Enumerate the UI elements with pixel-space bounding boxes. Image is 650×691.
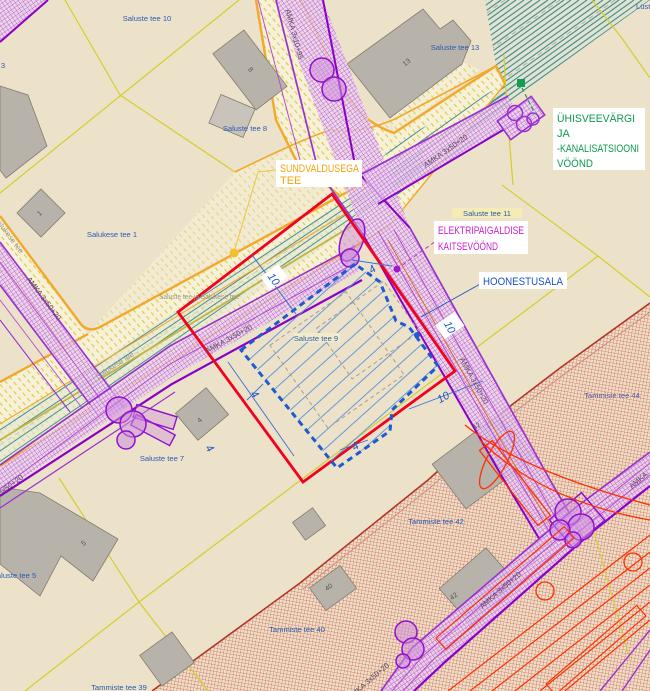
svg-text:JA: JA (557, 128, 571, 140)
svg-text:Salukese tee 1: Salukese tee 1 (87, 230, 137, 239)
svg-text:Saluste tee 8: Saluste tee 8 (223, 124, 267, 133)
svg-text:3: 3 (1, 61, 5, 70)
svg-text:Saluste tee 10: Saluste tee 10 (123, 14, 172, 23)
svg-text:ÜHISVEEVÄRGI: ÜHISVEEVÄRGI (557, 113, 635, 125)
svg-text:HOONESTUSALA: HOONESTUSALA (483, 276, 564, 288)
svg-text:-KANALISATSIOONI: -KANALISATSIOONI (557, 143, 639, 155)
svg-text:Saluste tee 5: Saluste tee 5 (0, 571, 36, 580)
svg-text:Saluste tee 13: Saluste tee 13 (431, 43, 480, 52)
svg-text:Saluste tee 11: Saluste tee 11 (463, 209, 511, 218)
svg-text:Saluste tee 7: Saluste tee 7 (140, 454, 184, 463)
svg-text:Tammiste tee 44: Tammiste tee 44 (584, 391, 640, 400)
svg-text:TEE: TEE (280, 175, 301, 187)
svg-text:Tammiste tee 42: Tammiste tee 42 (408, 517, 464, 526)
svg-text:Saluste tee 9: Saluste tee 9 (294, 334, 338, 343)
svg-text:Saluste tee ja Salukese tee: Saluste tee ja Salukese tee (159, 292, 239, 301)
svg-text:VÖÖND: VÖÖND (557, 158, 593, 170)
svg-text:KAITSEVÖÖND: KAITSEVÖÖND (438, 241, 498, 253)
svg-text:Lüsti: Lüsti (636, 2, 650, 11)
svg-text:SUNDVALDUSEGA: SUNDVALDUSEGA (280, 163, 360, 175)
svg-text:ELEKTRIPAIGALDISE: ELEKTRIPAIGALDISE (438, 225, 524, 237)
svg-text:Tammiste tee 39: Tammiste tee 39 (91, 683, 147, 691)
svg-text:Tammiste tee 40: Tammiste tee 40 (269, 625, 325, 634)
